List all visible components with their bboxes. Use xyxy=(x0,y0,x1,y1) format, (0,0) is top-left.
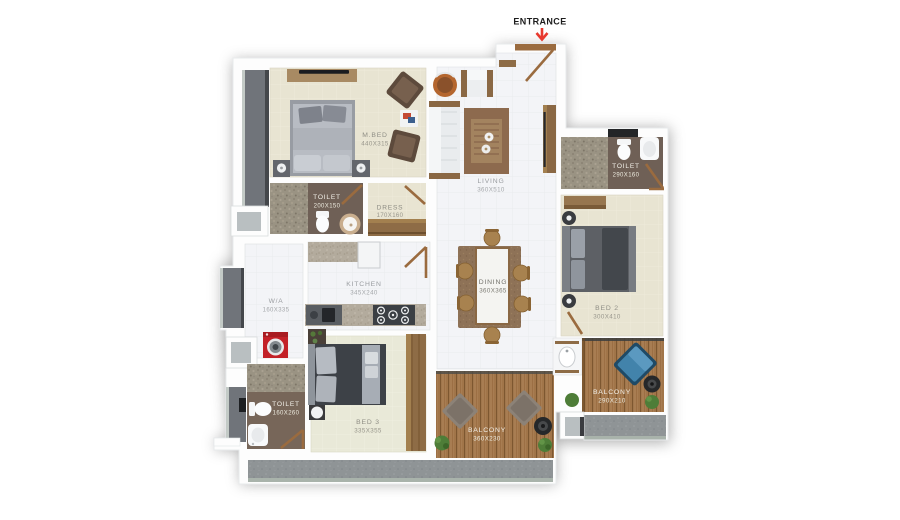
svg-text:335X355: 335X355 xyxy=(354,428,382,435)
svg-text:BALCONY: BALCONY xyxy=(468,427,506,434)
svg-text:KITCHEN: KITCHEN xyxy=(346,281,381,288)
svg-text:170X160: 170X160 xyxy=(377,213,404,219)
svg-text:TOILET: TOILET xyxy=(612,163,640,170)
svg-text:200X150: 200X150 xyxy=(314,204,341,210)
svg-text:DINING: DINING xyxy=(479,279,508,286)
svg-text:360X230: 360X230 xyxy=(473,436,501,443)
svg-text:W/A: W/A xyxy=(269,298,284,305)
svg-text:160X335: 160X335 xyxy=(263,308,290,314)
svg-text:290X160: 290X160 xyxy=(613,173,640,179)
svg-text:290X210: 290X210 xyxy=(598,398,626,405)
svg-text:345X240: 345X240 xyxy=(350,290,378,297)
svg-text:440X315: 440X315 xyxy=(361,141,389,148)
svg-text:ENTRANCE: ENTRANCE xyxy=(513,17,566,27)
svg-text:360X510: 360X510 xyxy=(477,187,505,194)
svg-text:BALCONY: BALCONY xyxy=(593,389,631,396)
svg-text:TOILET: TOILET xyxy=(313,194,341,201)
svg-text:LIVING: LIVING xyxy=(477,178,504,185)
svg-text:BED 3: BED 3 xyxy=(356,419,380,426)
svg-text:160X260: 160X260 xyxy=(273,411,300,417)
svg-text:M.BED: M.BED xyxy=(362,132,388,139)
svg-text:BED 2: BED 2 xyxy=(595,305,619,312)
svg-text:300X410: 300X410 xyxy=(593,314,621,321)
svg-text:360X365: 360X365 xyxy=(479,288,507,295)
svg-text:DRESS: DRESS xyxy=(377,205,404,212)
svg-text:TOILET: TOILET xyxy=(272,401,300,408)
